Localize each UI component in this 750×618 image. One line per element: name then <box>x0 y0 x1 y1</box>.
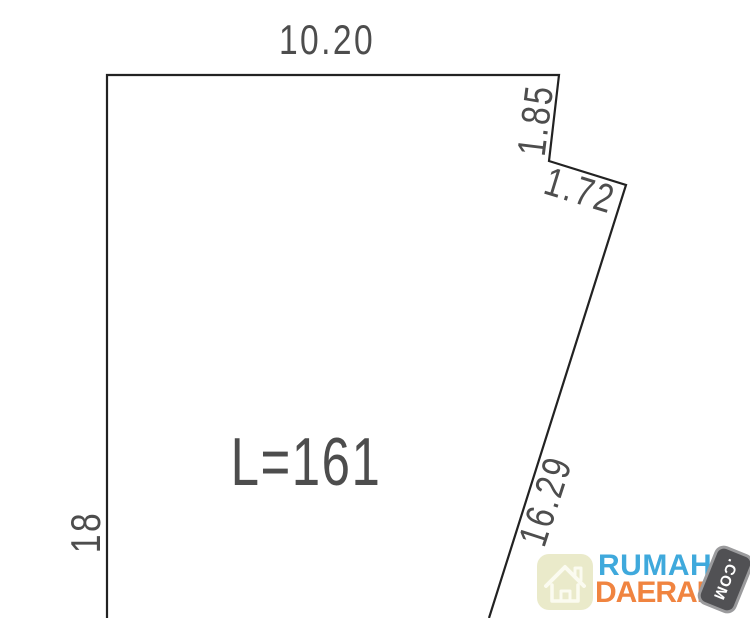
plot-outline-svg <box>0 0 750 618</box>
land-plot-diagram: 10.20 18 1.85 1.72 16.29 L=161 RUMAH DAE… <box>0 0 750 618</box>
com-badge-label: .COM <box>710 557 740 603</box>
home-icon <box>537 554 593 610</box>
dimension-left-height: 18 <box>65 511 107 553</box>
area-label: L=161 <box>231 428 382 496</box>
dimension-notch-side: 1.85 <box>512 82 560 158</box>
dimension-top-width: 10.20 <box>279 19 375 61</box>
